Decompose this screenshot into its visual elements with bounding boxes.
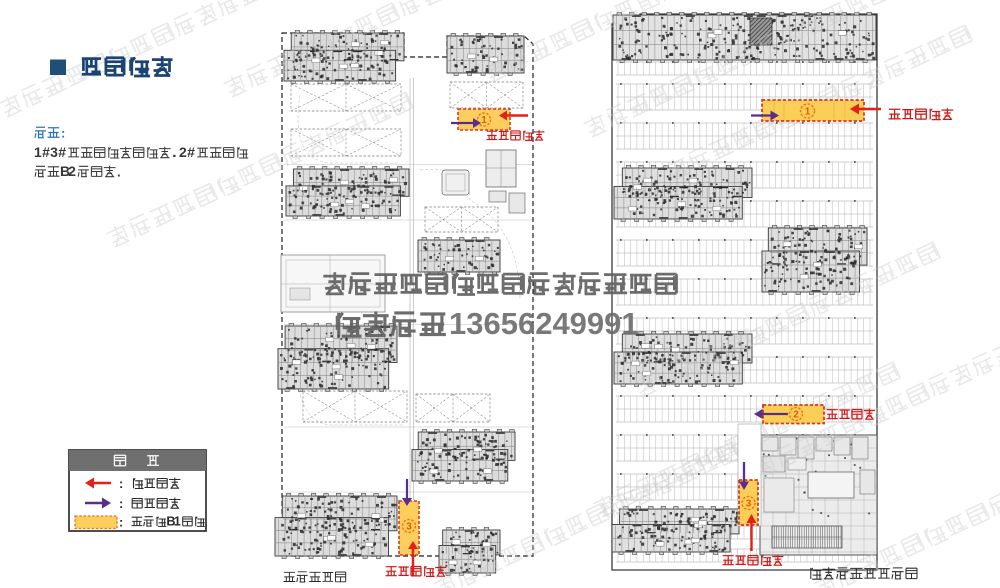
svg-text:3: 3 — [746, 498, 752, 509]
svg-text:#: # — [187, 144, 195, 160]
svg-text:1: 1 — [174, 515, 181, 529]
svg-text:1: 1 — [34, 144, 42, 160]
svg-text:3: 3 — [50, 144, 58, 160]
svg-text:2: 2 — [68, 163, 76, 179]
svg-text:3: 3 — [406, 521, 412, 532]
svg-text:#: # — [58, 144, 66, 160]
svg-text::: : — [61, 126, 65, 141]
svg-text:13656249991: 13656249991 — [449, 306, 639, 341]
svg-text::: : — [119, 515, 123, 530]
svg-text::: : — [119, 496, 123, 511]
svg-text:2: 2 — [793, 409, 799, 420]
svg-text:2: 2 — [179, 144, 187, 160]
svg-text:#: # — [42, 144, 50, 160]
svg-text::: : — [119, 476, 123, 491]
svg-text:1: 1 — [481, 115, 487, 126]
svg-text:1: 1 — [805, 107, 811, 118]
svg-text:.: . — [117, 165, 121, 180]
